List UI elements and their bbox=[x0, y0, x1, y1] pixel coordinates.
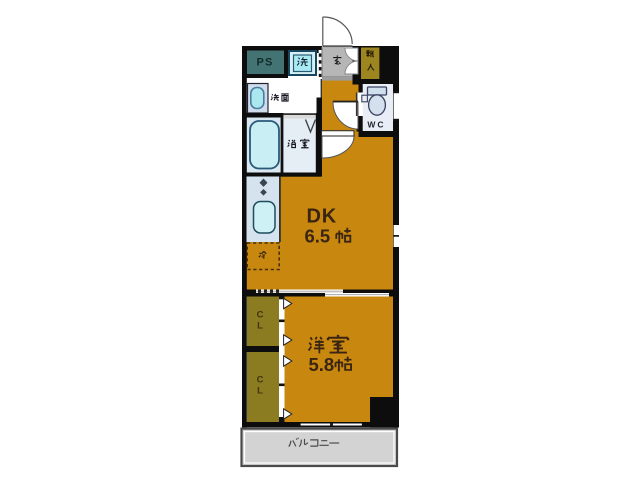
svg-text:C: C bbox=[257, 309, 264, 320]
svg-text:PS: PS bbox=[256, 57, 273, 69]
svg-text:L: L bbox=[257, 321, 263, 332]
svg-text:5.8: 5.8 bbox=[309, 354, 335, 375]
svg-text:DK: DK bbox=[307, 206, 338, 228]
svg-text:L: L bbox=[257, 386, 263, 397]
svg-text:6.5: 6.5 bbox=[305, 225, 331, 246]
svg-text:C: C bbox=[257, 375, 264, 386]
svg-text:WC: WC bbox=[367, 120, 385, 130]
